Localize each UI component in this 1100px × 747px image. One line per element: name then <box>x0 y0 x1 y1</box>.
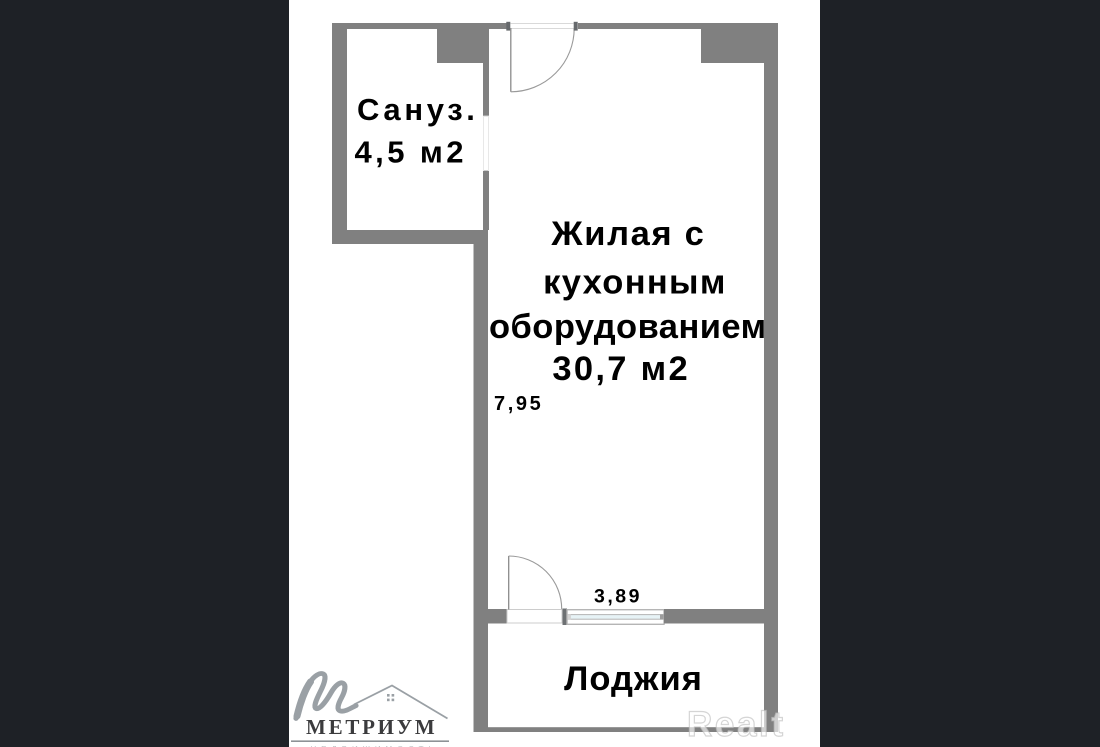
svg-text:кухонным: кухонным <box>543 264 727 302</box>
svg-text:4,5 м2: 4,5 м2 <box>355 134 467 169</box>
svg-text:МЕТРИУМ: МЕТРИУМ <box>306 715 437 739</box>
svg-text:Жилая с: Жилая с <box>550 215 705 253</box>
svg-text:3,89: 3,89 <box>594 586 642 608</box>
svg-text:Realt: Realt <box>687 705 786 744</box>
svg-text:Лоджия: Лоджия <box>564 660 703 698</box>
svg-text:7,95: 7,95 <box>494 393 543 415</box>
svg-text:оборудованием: оборудованием <box>489 308 767 346</box>
svg-text:30,7 м2: 30,7 м2 <box>552 350 690 388</box>
svg-text:Сануз.: Сануз. <box>357 92 479 127</box>
